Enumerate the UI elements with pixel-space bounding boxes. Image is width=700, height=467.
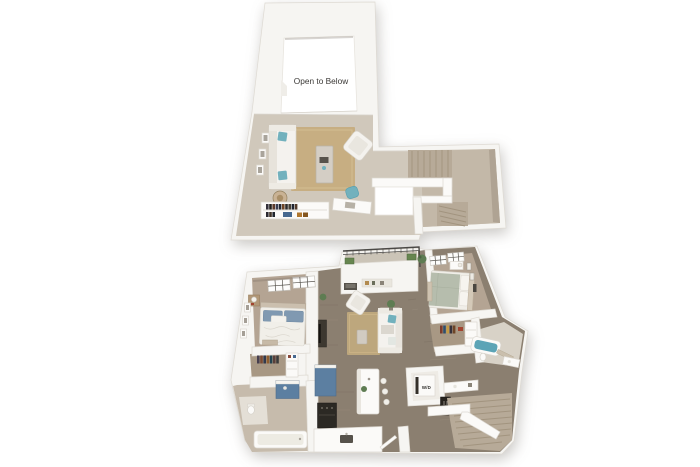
small-plant bbox=[320, 294, 327, 301]
floor-plan-image: Open to Below bbox=[0, 0, 700, 467]
corridor-plant bbox=[418, 255, 427, 264]
bed-bench bbox=[263, 340, 278, 345]
stool bbox=[381, 378, 387, 384]
tv-console bbox=[319, 320, 327, 347]
coffee-table bbox=[316, 146, 333, 183]
bed2-bench bbox=[428, 282, 433, 301]
open-to-below-area bbox=[281, 36, 357, 113]
living-sofa bbox=[378, 308, 402, 353]
kitchen-counter bbox=[314, 427, 382, 453]
lower-floor-plan: W/D bbox=[220, 245, 535, 467]
dresser bbox=[450, 262, 463, 270]
bathtub-1 bbox=[254, 431, 307, 448]
laundry-closet: W/D bbox=[406, 366, 445, 406]
loft-sofa bbox=[269, 125, 296, 189]
sink bbox=[340, 435, 353, 443]
stair-railing bbox=[372, 178, 452, 187]
bed-1 bbox=[259, 302, 305, 346]
kitchen-cabinet bbox=[315, 365, 336, 396]
balcony-planter bbox=[345, 258, 354, 264]
toilet bbox=[480, 353, 486, 361]
toilet bbox=[248, 404, 255, 414]
fireplace-vent bbox=[344, 283, 357, 290]
stair-opening bbox=[375, 187, 413, 215]
side-table bbox=[357, 330, 367, 344]
range bbox=[318, 403, 337, 428]
upper-floor-plan: Open to Below bbox=[223, 0, 511, 247]
bathroom1-vanity bbox=[276, 381, 299, 399]
stool bbox=[384, 399, 390, 405]
balcony-planter bbox=[407, 254, 416, 260]
bookshelf bbox=[261, 202, 329, 219]
open-to-below-label: Open to Below bbox=[294, 76, 349, 86]
washer-dryer-label: W/D bbox=[422, 385, 431, 390]
stool bbox=[382, 389, 388, 395]
bed-2 bbox=[429, 271, 475, 311]
